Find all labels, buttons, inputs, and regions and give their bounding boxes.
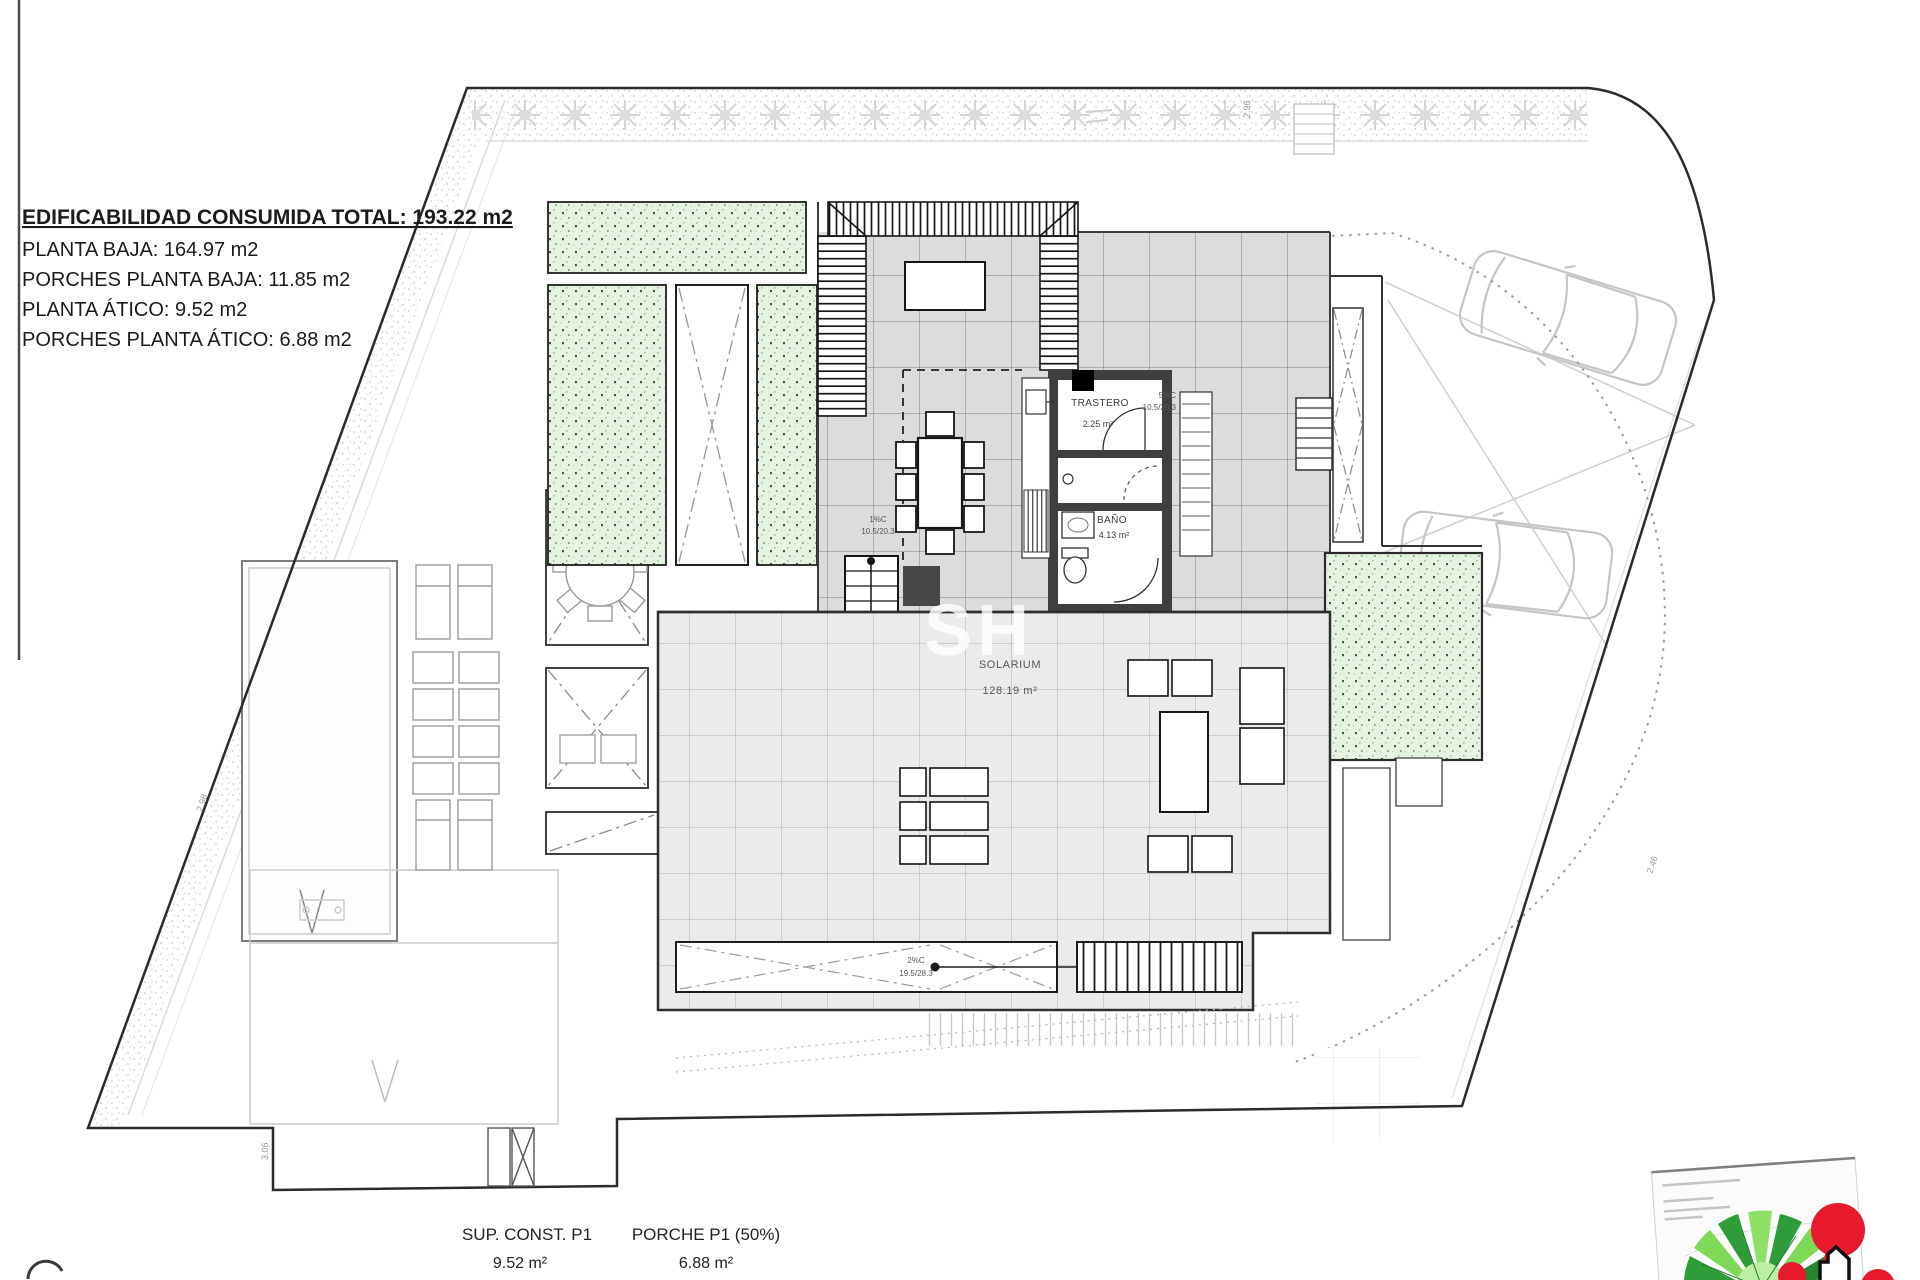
stair-note-top-line1: 1%C [869,515,887,524]
ghost-stair-below [920,1013,1300,1046]
footer-col2-label: PORCHE P1 (50%) [632,1225,780,1244]
dim-top-right: 2.96 [1242,100,1252,118]
watermark: SH [748,1011,894,1121]
parked-car-icon [1452,238,1683,399]
solarium-stair [1077,942,1242,992]
kitchen-counter [1022,378,1054,558]
trastero-area: 2.25 m² [1083,419,1114,429]
hedge-row [472,94,1588,140]
footer-col1-label: SUP. CONST. P1 [462,1225,592,1244]
right-strip-stair [1180,392,1212,556]
info-title: EDIFICABILIDAD CONSUMIDA TOTAL: 193.22 m… [22,206,513,229]
bano-label: BAÑO [1097,513,1127,526]
pool [242,561,397,941]
footer-col1-value: 9.52 m² [493,1255,548,1272]
floor-plan-page: 1%C 10.5/20.3 TRASTERO 2.25 m² BAÑO 4 [0,0,1920,1280]
entrance-canopy [828,202,1078,236]
ghost-stair-top [1294,104,1334,154]
roof-skylight [676,285,748,565]
garden-bed-right [1325,553,1482,760]
ghost-tile-patch [1315,1048,1420,1142]
stair-note-right-line2: 10.5/20.3 [1143,403,1177,412]
terrace-right-stair [1296,398,1332,470]
porch-table [905,262,985,310]
bano-area: 4.13 m² [1099,530,1130,540]
stair-note-right-line1: 5%C [1159,391,1177,400]
stair-note-top-line2: 10.5/20.3 [861,527,895,536]
info-line-3: PLANTA ÁTICO: 9.52 m2 [22,298,247,321]
compass-mark [28,1261,62,1279]
trastero-label: TRASTERO [1071,398,1129,409]
site-plan-drawing: 1%C 10.5/20.3 TRASTERO 2.25 m² BAÑO 4 [0,0,1920,1280]
footer-col2-value: 6.88 m² [679,1255,734,1272]
sun-loungers [413,565,499,870]
right-planter [1343,768,1390,940]
info-line-1: PLANTA BAJA: 164.97 m2 [22,239,258,261]
info-line-2: PORCHES PLANTA BAJA: 11.85 m2 [22,269,350,291]
info-line-4: PORCHES PLANTA ÁTICO: 6.88 m2 [22,328,352,351]
solarium-label: SOLARIUM [979,659,1041,671]
entrance-stair [818,236,866,416]
dim-bottom: 3.06 [260,1142,270,1160]
solarium-loungers [900,768,988,864]
footer-surfaces: SUP. CONST. P1 9.52 m² PORCHE P1 (50%) 6… [462,1225,780,1272]
solarium-area-label: 128.19 m² [983,685,1038,697]
stair-note-bottom-line1: 2%C [907,956,925,965]
entrance-stair-right [1040,236,1078,370]
stair-note-bottom-line2: 19.5/28.3 [899,969,933,978]
boundary-porch-boxes [488,1128,534,1186]
side-table [1396,758,1442,806]
dim-right: 2.46 [1644,855,1659,875]
